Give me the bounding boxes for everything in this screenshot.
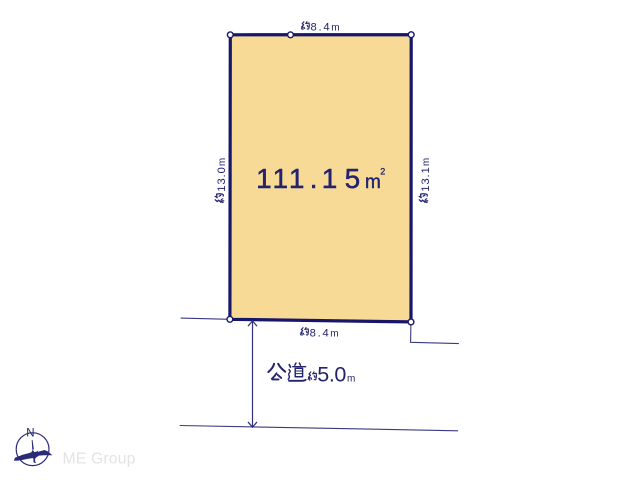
svg-text:m: m [330, 328, 338, 339]
svg-text:2: 2 [380, 166, 385, 176]
svg-text:5.0: 5.0 [317, 363, 346, 387]
svg-text:m: m [217, 158, 228, 166]
svg-text:13.1: 13.1 [420, 166, 432, 191]
svg-text:m: m [347, 373, 355, 384]
svg-text:m: m [421, 158, 432, 166]
svg-text:8.4: 8.4 [310, 327, 331, 339]
svg-text:N: N [26, 428, 34, 440]
svg-text:m: m [365, 172, 381, 193]
svg-text:13.0: 13.0 [216, 166, 228, 191]
svg-text:m: m [331, 22, 339, 33]
svg-text:ME Group: ME Group [63, 451, 136, 468]
svg-text:8.4: 8.4 [311, 22, 332, 34]
